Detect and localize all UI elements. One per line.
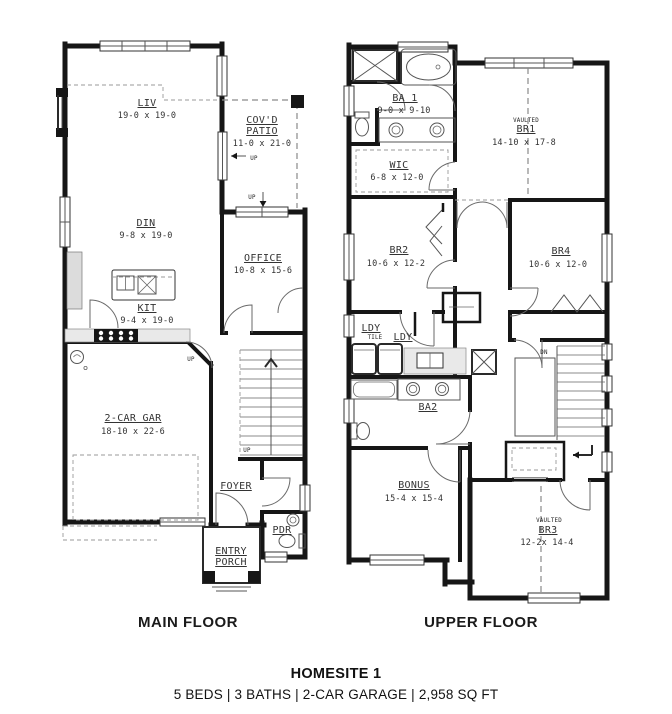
room-label-bonus: BONUS xyxy=(398,480,430,491)
toilet xyxy=(357,423,370,440)
room-label-porch-2: PORCH xyxy=(215,557,247,568)
room-dims-office: 10-8 x 15-6 xyxy=(234,266,293,276)
room-dims-wic: 6-8 x 12-0 xyxy=(370,173,423,183)
room-prefix-br3: VAULTED xyxy=(536,518,562,524)
floor-plan-drawing: LIV 19-0 x 19-0 COV'D PATIO 11-0 x 21-0 … xyxy=(0,0,672,714)
sink xyxy=(389,123,403,137)
upper-floor-plan: BA 1 9-0 x 9-10 VAULTED BR1 14-10 x 17-8… xyxy=(344,42,612,603)
room-dims-kit: 9-4 x 19-0 xyxy=(120,316,173,326)
kitchen-island xyxy=(112,270,175,300)
br2-closet-bifold xyxy=(426,210,442,256)
up-note-stairs: UP xyxy=(243,448,251,454)
room-label-garage: 2-CAR GAR xyxy=(105,413,163,424)
driveway-apron xyxy=(63,526,157,540)
room-sub-ldy1: TILE xyxy=(368,335,383,341)
room-label-kit: KIT xyxy=(138,303,157,314)
dn-note-stairs: DN xyxy=(540,350,548,356)
patio-post xyxy=(291,95,304,108)
up-note-garage: UP xyxy=(187,357,195,363)
room-label-patio-1: COV'D xyxy=(246,115,278,126)
sink xyxy=(436,383,449,396)
upper-interior-walls xyxy=(349,47,607,560)
main-floor-plan: LIV 19-0 x 19-0 COV'D PATIO 11-0 x 21-0 … xyxy=(56,41,310,591)
toilet-tank xyxy=(355,112,369,118)
room-dims-patio: 11-0 x 21-0 xyxy=(233,139,292,149)
room-dims-din: 9-8 x 19-0 xyxy=(119,231,172,241)
room-label-foyer: FOYER xyxy=(220,481,252,492)
floor-plan-sheet: LIV 19-0 x 19-0 COV'D PATIO 11-0 x 21-0 … xyxy=(0,0,672,714)
room-dims-bonus: 15-4 x 15-4 xyxy=(385,494,444,504)
wic-shelving xyxy=(356,150,448,192)
br4-closet-bifold xyxy=(551,295,603,312)
room-dims-br2: 10-6 x 12-2 xyxy=(367,259,426,269)
room-label-br4: BR4 xyxy=(552,246,571,257)
room-dims-garage: 18-10 x 22-6 xyxy=(101,427,165,437)
homesite-title: HOMESITE 1 xyxy=(291,666,382,682)
room-label-ldy1: LDY xyxy=(362,323,381,334)
room-label-br3: BR3 xyxy=(539,525,558,536)
room-dims-br4: 10-6 x 12-0 xyxy=(529,260,588,270)
dryer xyxy=(378,344,402,374)
linen-closet xyxy=(443,293,480,322)
main-stairs xyxy=(240,350,303,455)
room-label-liv: LIV xyxy=(138,98,157,109)
garage-parking-pad xyxy=(73,455,198,520)
room-dims-ba1: 9-0 x 9-10 xyxy=(377,106,430,116)
stair-well xyxy=(515,358,555,436)
porch-post xyxy=(248,571,260,583)
room-label-pdr: PDR xyxy=(273,525,293,536)
water-heater xyxy=(71,351,84,364)
refrigerator xyxy=(67,252,82,309)
room-label-patio-2: PATIO xyxy=(246,126,278,137)
room-label-ba1: BA 1 xyxy=(392,93,417,104)
up-note-office: UP xyxy=(248,195,256,201)
upper-floor-caption: UPPER FLOOR xyxy=(424,614,538,631)
sink xyxy=(407,383,420,396)
room-label-ldy2: LDY xyxy=(394,332,413,343)
washer xyxy=(352,344,376,374)
upper-door-swings xyxy=(377,82,590,510)
kitchen-fixtures xyxy=(65,252,190,370)
pdr-toilet xyxy=(279,535,295,548)
tub xyxy=(351,380,397,399)
room-label-din: DIN xyxy=(137,218,156,229)
room-label-ba2: BA2 xyxy=(419,402,438,413)
main-floor-caption: MAIN FLOOR xyxy=(138,614,238,631)
up-note-patio: UP xyxy=(250,156,258,162)
room-label-br1: BR1 xyxy=(517,124,536,135)
porch-post xyxy=(203,571,215,583)
room-dims-liv: 19-0 x 19-0 xyxy=(118,111,177,121)
toilet xyxy=(356,118,369,136)
room-label-wic: WIC xyxy=(390,160,409,171)
room-label-office: OFFICE xyxy=(244,253,282,264)
room-dims-br1: 14-10 x 17-8 xyxy=(492,138,556,148)
room-label-porch-1: ENTRY xyxy=(215,546,247,557)
room-dims-br3: 12-2x 14-4 xyxy=(520,538,573,548)
double-vanity xyxy=(398,379,460,400)
upper-stairs xyxy=(506,346,605,482)
sink xyxy=(430,123,444,137)
room-label-br2: BR2 xyxy=(390,245,409,256)
homesite-specs: 5 BEDS | 3 BATHS | 2-CAR GARAGE | 2,958 … xyxy=(174,687,499,702)
